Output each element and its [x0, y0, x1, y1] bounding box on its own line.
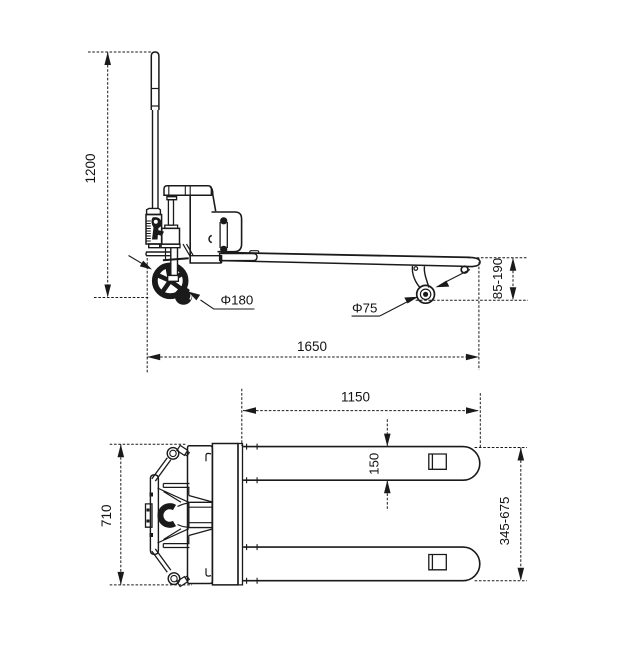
svg-text:1150: 1150: [341, 390, 370, 405]
svg-text:1200: 1200: [83, 153, 98, 183]
svg-text:345-675: 345-675: [497, 497, 512, 546]
svg-text:1650: 1650: [297, 339, 327, 354]
svg-text:Φ180: Φ180: [221, 293, 254, 308]
svg-text:710: 710: [99, 505, 114, 528]
svg-text:85-190: 85-190: [490, 258, 505, 299]
svg-text:150: 150: [367, 453, 382, 475]
svg-text:Φ75: Φ75: [352, 301, 377, 316]
